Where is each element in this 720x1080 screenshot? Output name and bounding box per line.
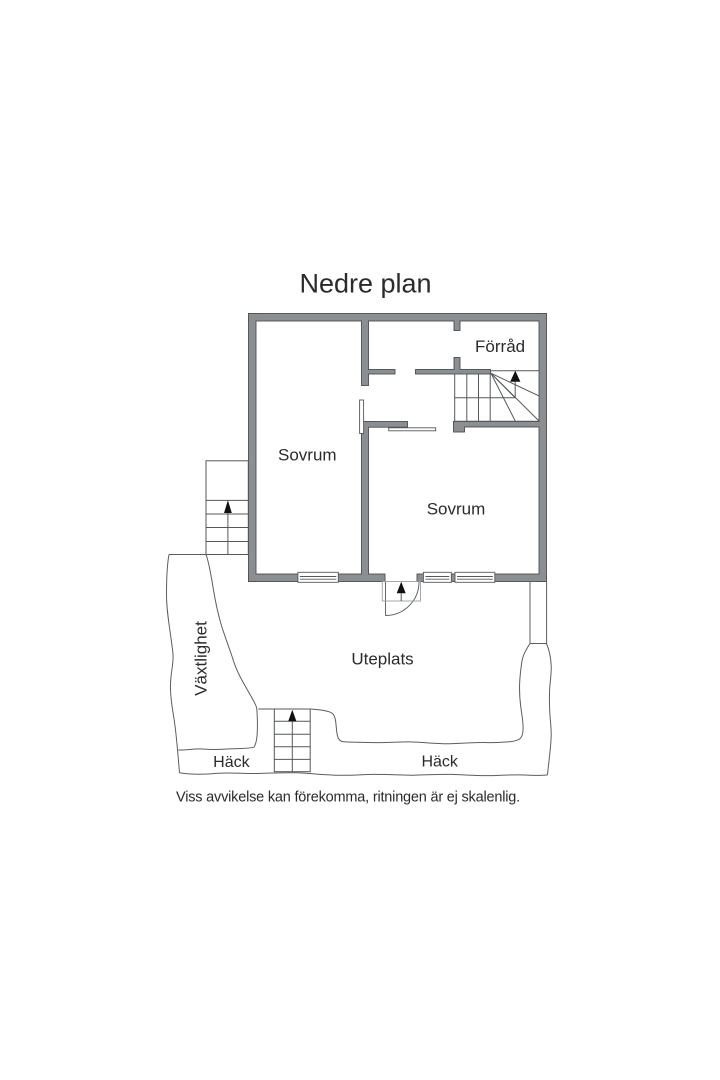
svg-text:Häck: Häck [213,754,250,771]
svg-text:Uteplats: Uteplats [351,649,413,668]
svg-text:Växtlighet: Växtlighet [192,621,211,696]
svg-text:Häck: Häck [421,754,458,771]
svg-text:Sovrum: Sovrum [427,499,486,518]
svg-text:Förråd: Förråd [475,337,525,356]
svg-text:Sovrum: Sovrum [278,445,337,464]
svg-text:Viss avvikelse kan förekomma,: Viss avvikelse kan förekomma, ritningen … [176,790,520,806]
svg-text:Nedre plan: Nedre plan [299,269,431,299]
